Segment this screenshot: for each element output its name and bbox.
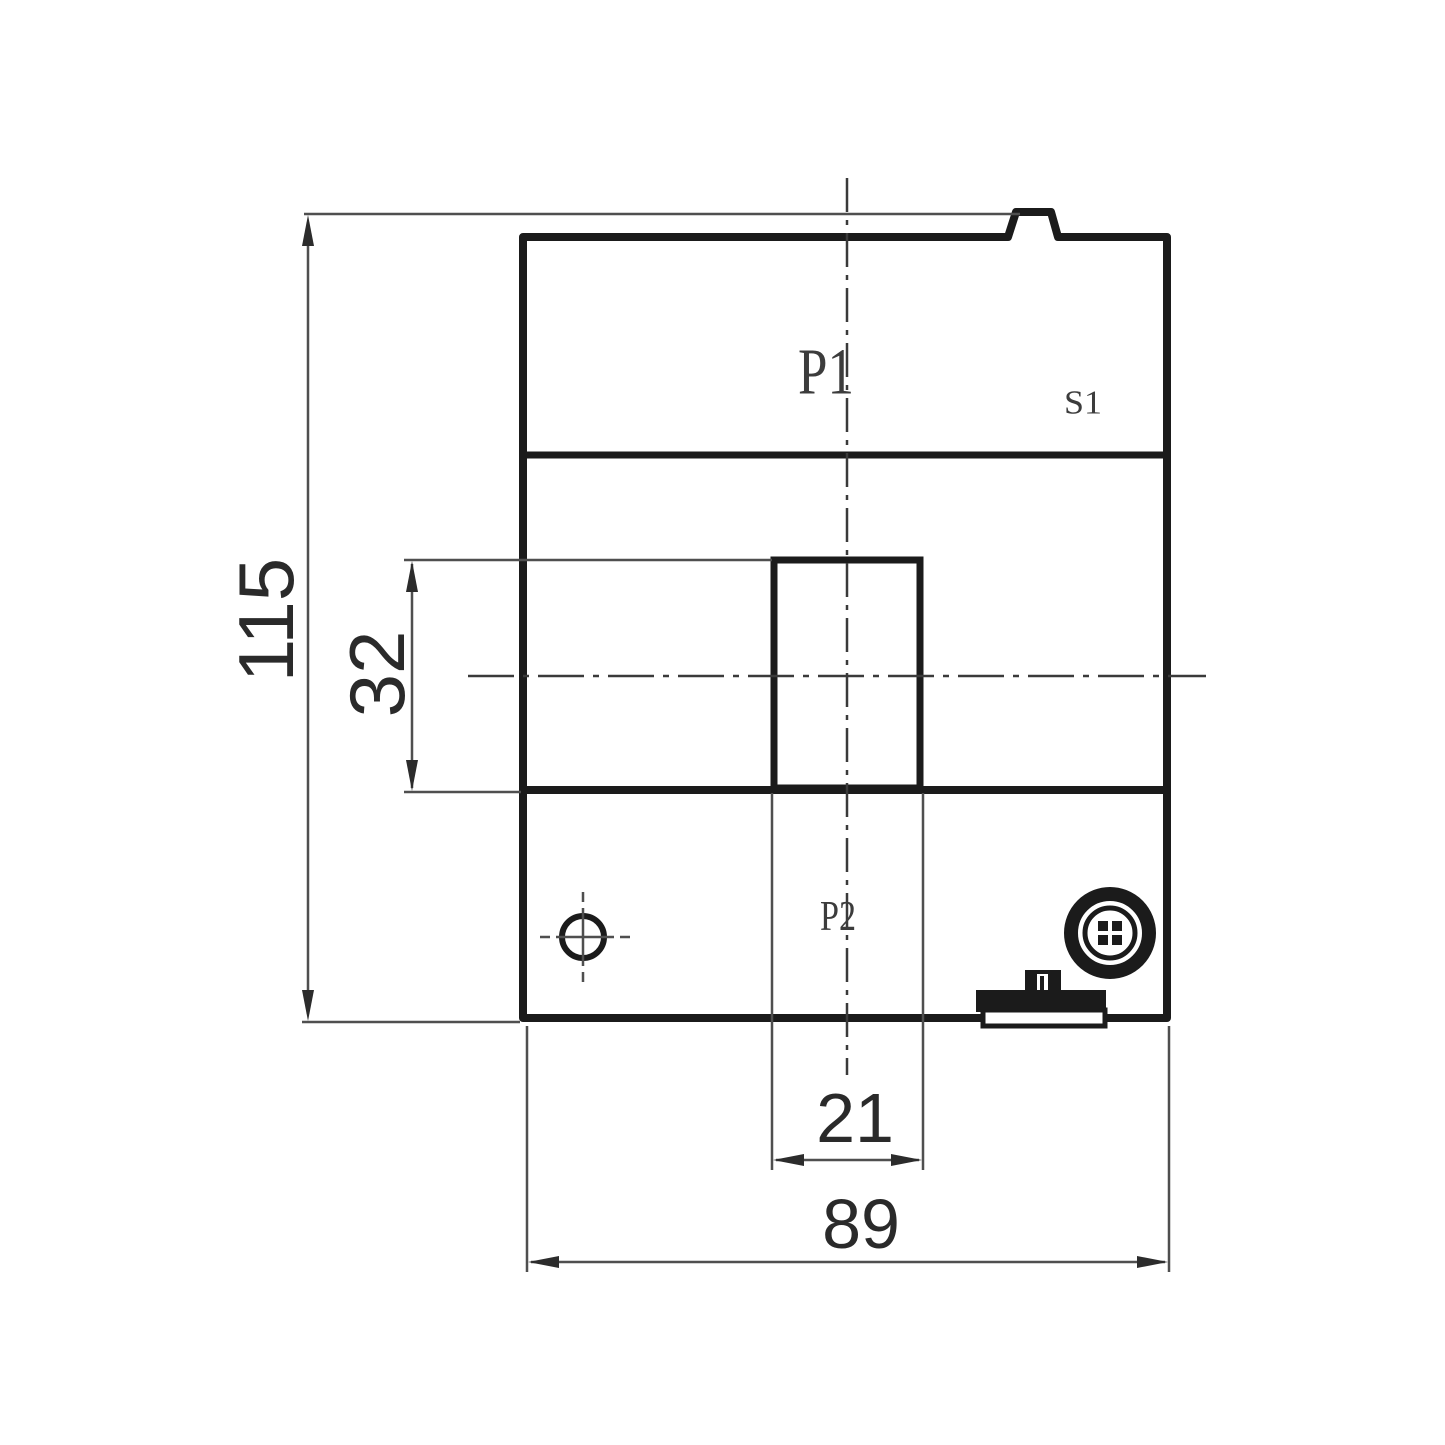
dimension-drawing: 115 32 21 89 P1 S1 P2 xyxy=(0,0,1445,1445)
arrowhead-right xyxy=(891,1154,922,1166)
dim-value-115: 115 xyxy=(222,558,310,682)
arrowhead-left xyxy=(773,1154,804,1166)
technical-drawing-canvas: 115 32 21 89 P1 S1 P2 xyxy=(0,0,1445,1445)
label-s1: S1 xyxy=(1064,385,1102,422)
terminal-connector-icon xyxy=(1071,894,1149,972)
terminal-labels: P1 S1 P2 xyxy=(798,336,1102,941)
arrowhead-down xyxy=(302,990,314,1021)
terminal-inner-ring xyxy=(1085,908,1135,958)
dim-value-89: 89 xyxy=(822,1185,900,1263)
arrowhead-up xyxy=(406,561,418,592)
din-rail-clip-icon xyxy=(976,970,1106,1026)
arrowhead-down xyxy=(406,760,418,791)
label-p1: P1 xyxy=(798,336,854,409)
arrowhead-left xyxy=(528,1256,559,1268)
mounting-hole-crosshair-icon xyxy=(540,892,630,982)
dimension-overall-height: 115 xyxy=(222,214,1020,1022)
clip-base-plate xyxy=(983,1010,1105,1026)
dim-value-21: 21 xyxy=(816,1079,894,1157)
label-p2: P2 xyxy=(820,894,856,940)
arrowhead-up xyxy=(302,215,314,246)
arrowhead-right xyxy=(1137,1256,1168,1268)
dim-value-32: 32 xyxy=(333,631,421,718)
